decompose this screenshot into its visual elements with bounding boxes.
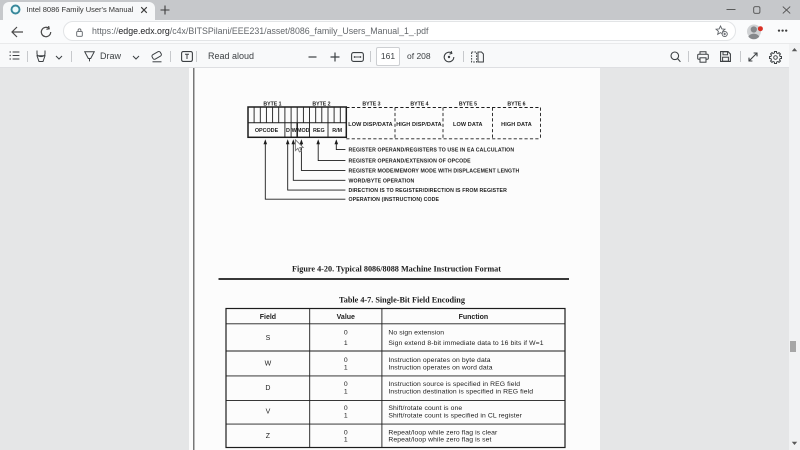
svg-text:OPCODE: OPCODE [255,128,279,134]
svg-text:Instruction destination is spe: Instruction destination is specified in … [388,389,533,396]
svg-text:1: 1 [344,413,348,420]
svg-text:Value: Value [337,314,355,321]
svg-text:Instruction source is specifie: Instruction source is specified in REG f… [388,381,520,388]
svg-text:Sign extend 8-bit immediate da: Sign extend 8-bit immediate data to 16 b… [388,340,543,347]
svg-text:1: 1 [344,437,348,444]
svg-text:D: D [286,128,290,134]
svg-text:LOW DISP/DATA: LOW DISP/DATA [348,122,392,128]
svg-text:REGISTER OPERAND/EXTENSION OF: REGISTER OPERAND/EXTENSION OF OPCODE [349,159,472,165]
svg-text:BYTE 6: BYTE 6 [507,101,525,107]
svg-text:Repeat/loop while zero flag is: Repeat/loop while zero flag is set [388,437,491,444]
svg-text:Function: Function [459,314,489,321]
svg-text:0: 0 [344,429,348,436]
svg-text:0: 0 [344,381,348,388]
svg-text:1: 1 [344,389,348,396]
svg-text:REGISTER OPERAND/REGISTERS TO: REGISTER OPERAND/REGISTERS TO USE IN EA … [349,148,515,154]
svg-text:D: D [265,385,270,392]
svg-text:0: 0 [344,405,348,412]
svg-text:0: 0 [344,329,348,336]
svg-text:W: W [265,361,272,368]
svg-text:R/M: R/M [332,128,342,134]
svg-text:Shift/rotate count is specifie: Shift/rotate count is specified in CL re… [388,413,522,420]
svg-text:S: S [266,335,271,342]
svg-text:REG: REG [313,128,325,134]
svg-text:WORD/BYTE OPERATION: WORD/BYTE OPERATION [349,178,415,184]
svg-text:Instruction operates on word d: Instruction operates on word data [388,365,492,372]
svg-text:No sign extension: No sign extension [388,329,444,336]
svg-text:BYTE 3: BYTE 3 [362,101,380,107]
svg-text:1: 1 [344,340,348,347]
svg-text:Repeat/loop while zero flag is: Repeat/loop while zero flag is clear [388,429,498,436]
svg-text:LOW DATA: LOW DATA [453,122,483,128]
svg-text:V: V [266,409,271,416]
svg-text:BYTE 4: BYTE 4 [410,101,428,107]
svg-text:Instruction operates on byte d: Instruction operates on byte data [388,357,490,364]
svg-text:HIGH DISP/DATA: HIGH DISP/DATA [396,122,442,128]
svg-text:BYTE 5: BYTE 5 [459,101,477,107]
svg-text:DIRECTION IS TO REGISTER/DIREC: DIRECTION IS TO REGISTER/DIRECTION IS FR… [349,188,508,194]
svg-text:OPERATION (INSTRUCTION) CODE: OPERATION (INSTRUCTION) CODE [349,197,440,203]
svg-text:Figure 4-20. Typical 8086/8088: Figure 4-20. Typical 8086/8088 Machine I… [292,264,501,273]
svg-text:REGISTER MODE/MEMORY MODE WITH: REGISTER MODE/MEMORY MODE WITH DISPLACEM… [349,168,520,174]
svg-text:Table 4-7. Single-Bit Field En: Table 4-7. Single-Bit Field Encoding [339,295,466,304]
svg-text:Shift/rotate count is one: Shift/rotate count is one [388,405,462,412]
svg-text:MOD: MOD [297,128,310,134]
svg-text:Z: Z [266,433,271,440]
svg-text:1: 1 [344,365,348,372]
svg-text:Field: Field [260,314,276,321]
svg-text:0: 0 [344,357,348,364]
svg-text:HIGH DATA: HIGH DATA [501,122,532,128]
